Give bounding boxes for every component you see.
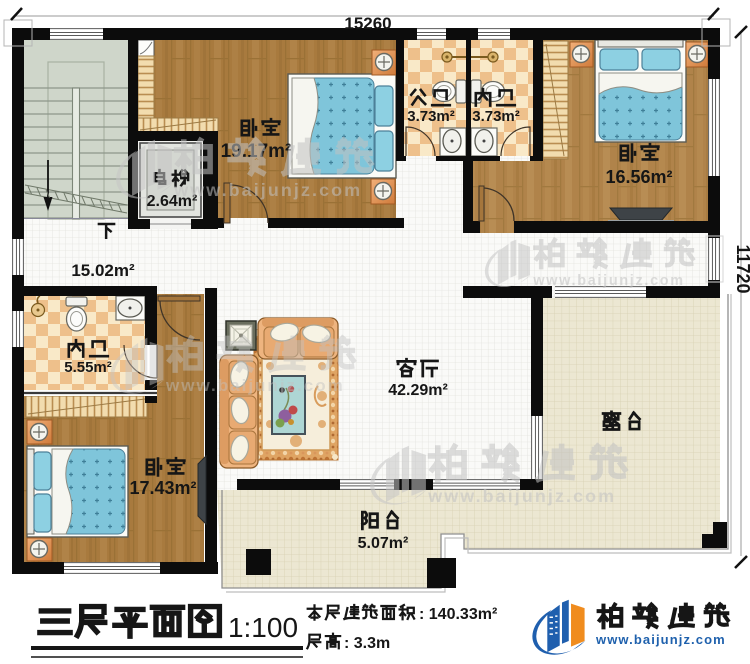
svg-text:: 140.33m²: : 140.33m² (419, 606, 497, 623)
svg-text:www.baijunjz.com: www.baijunjz.com (173, 180, 362, 200)
svg-text:3.73m²: 3.73m² (472, 108, 520, 125)
svg-text:www.baijunjz.com: www.baijunjz.com (165, 376, 345, 395)
svg-text:15.02m²: 15.02m² (71, 261, 135, 280)
svg-text:www.baijunjz.com: www.baijunjz.com (427, 486, 616, 506)
svg-text:17.43m²: 17.43m² (129, 478, 196, 498)
svg-text:5.55m²: 5.55m² (64, 359, 112, 376)
svg-text:1:100: 1:100 (228, 612, 298, 643)
svg-text:: 3.3m: : 3.3m (344, 635, 390, 652)
svg-text:3.73m²: 3.73m² (407, 108, 455, 125)
svg-text:www.baijunjz.com: www.baijunjz.com (595, 632, 726, 647)
svg-text:42.29m²: 42.29m² (388, 382, 448, 399)
svg-text:11720: 11720 (733, 244, 750, 293)
svg-text:16.56m²: 16.56m² (605, 167, 672, 187)
svg-text:15260: 15260 (344, 14, 391, 33)
svg-text:www.baijunjz.com: www.baijunjz.com (532, 273, 684, 289)
svg-text:5.07m²: 5.07m² (358, 535, 409, 552)
